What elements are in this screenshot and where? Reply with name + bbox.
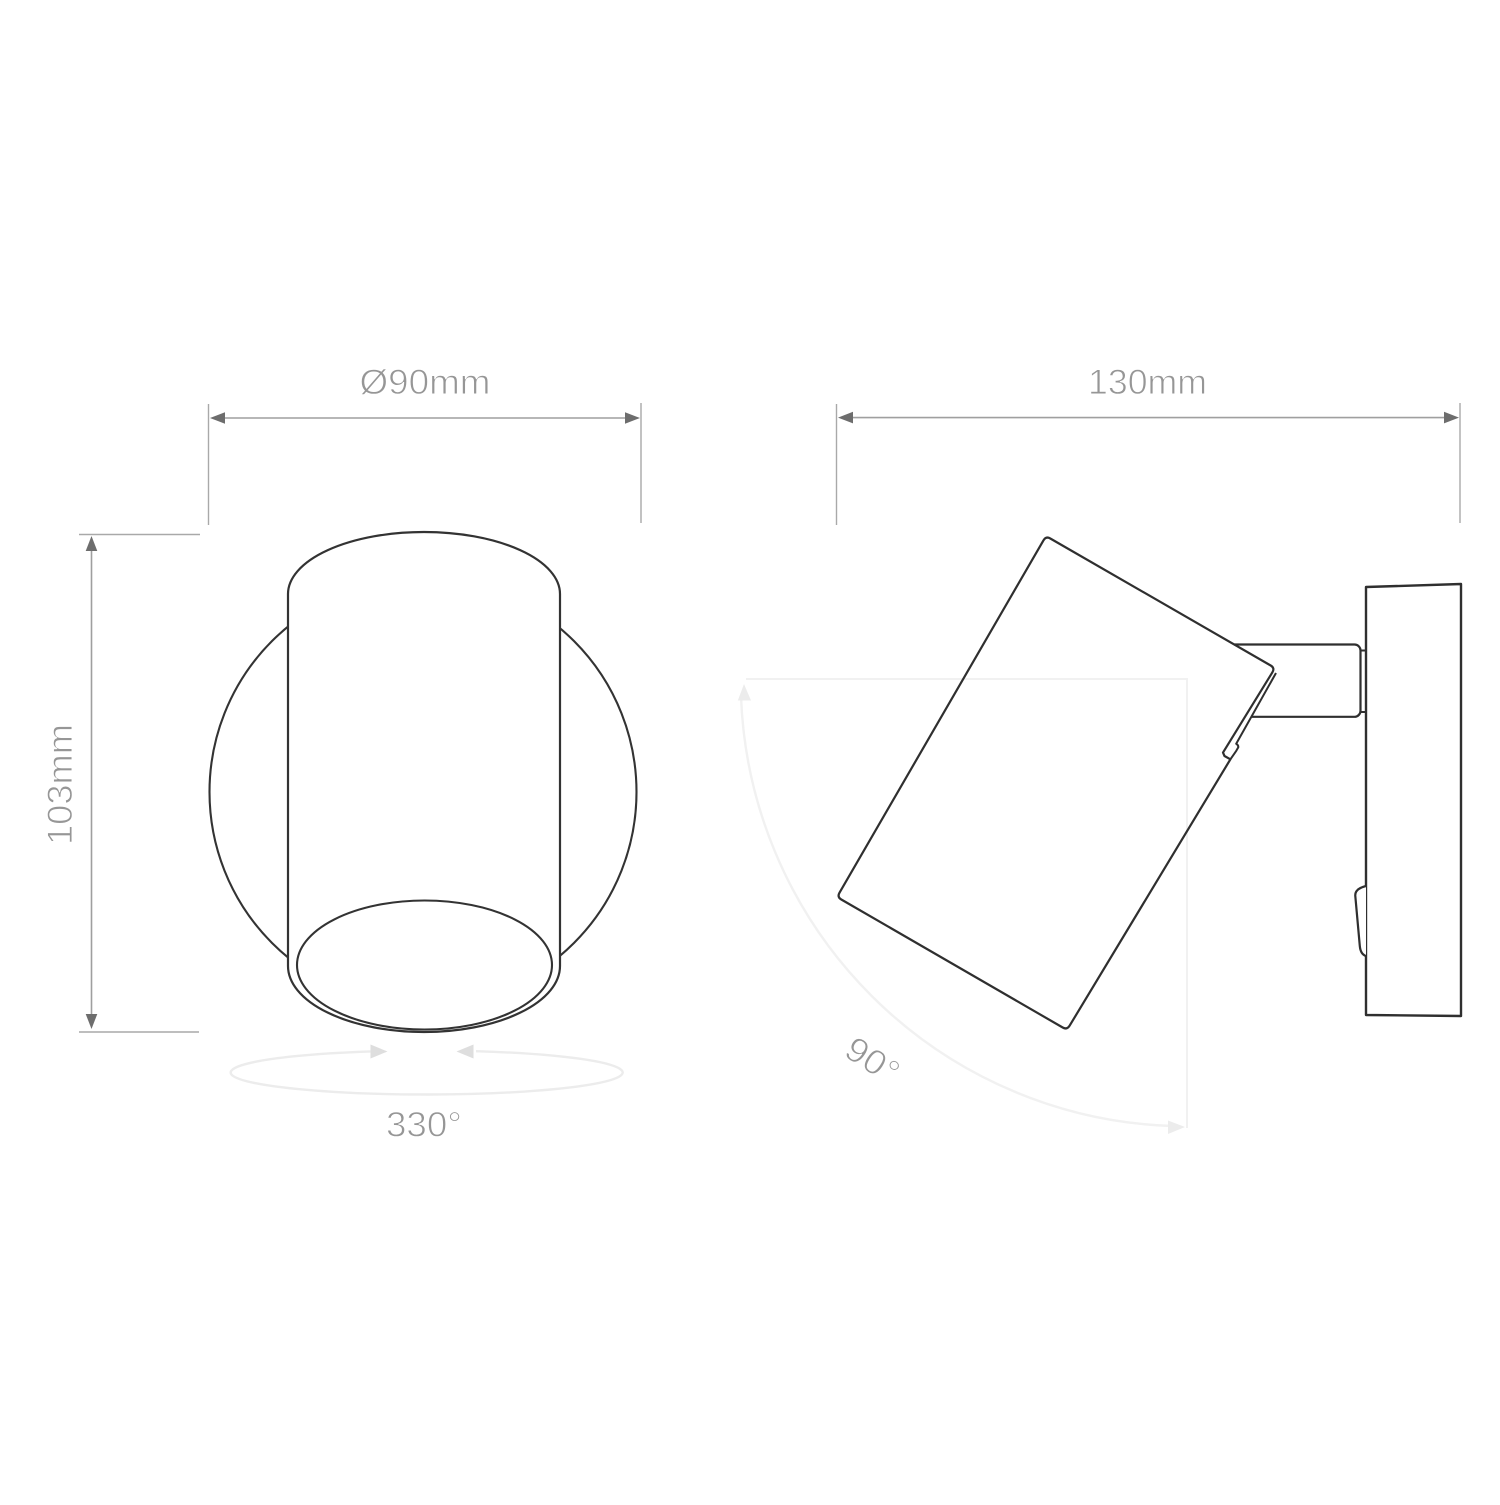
svg-text:330°: 330° <box>386 1106 462 1145</box>
svg-text:Ø90mm: Ø90mm <box>360 363 491 402</box>
svg-text:103mm: 103mm <box>41 724 80 845</box>
svg-text:130mm: 130mm <box>1088 363 1207 402</box>
